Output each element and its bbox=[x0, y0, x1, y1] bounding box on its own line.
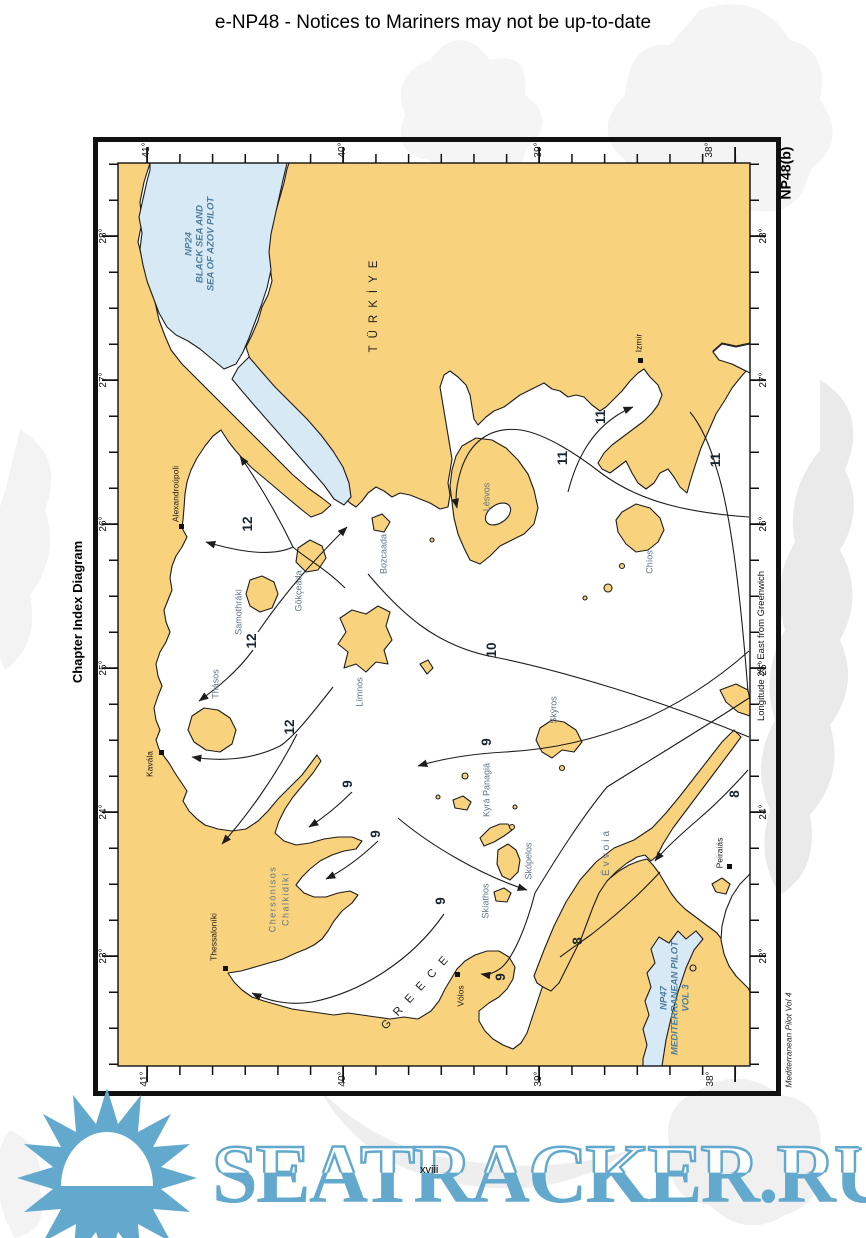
island-label-evvoia: Évvoia bbox=[602, 828, 613, 876]
islet bbox=[510, 825, 515, 830]
city-label-izmir: Izmir bbox=[635, 334, 644, 352]
islet bbox=[430, 538, 434, 542]
longitude-note: Longitude 25° East from Greenwich bbox=[757, 571, 767, 721]
axis-label-bottom-40: 40° bbox=[338, 1071, 349, 1086]
chapter-label-8b: 8 bbox=[728, 790, 742, 798]
axis-label-top-40: 40° bbox=[338, 142, 349, 157]
chapter-label-12b: 12 bbox=[245, 633, 259, 648]
peiraias-marker bbox=[727, 864, 732, 869]
chapter-label-12a: 12 bbox=[241, 516, 255, 531]
island-label-skiathos: Skíathos bbox=[481, 883, 490, 918]
islet bbox=[436, 795, 440, 799]
map-svg bbox=[0, 0, 866, 1238]
chapter-label-8a: 8 bbox=[571, 937, 585, 945]
islet bbox=[513, 805, 517, 809]
chapter-label-12c: 12 bbox=[283, 719, 297, 734]
island-label-limnos: Límnos bbox=[355, 677, 364, 707]
chapter-label-11c: 11 bbox=[556, 451, 570, 465]
chapter-label-11b: 11 bbox=[594, 410, 608, 424]
axis-label-top-41: 41° bbox=[142, 142, 153, 157]
axis-label-right-28: 28° bbox=[759, 228, 770, 243]
chart-side-title: Chapter Index Diagram bbox=[71, 541, 85, 683]
axis-label-bottom-38: 38° bbox=[706, 1071, 717, 1086]
chapter-label-9e: 9 bbox=[494, 973, 508, 981]
axis-label-left-27: 27° bbox=[99, 372, 110, 387]
kavala-marker bbox=[159, 750, 164, 755]
axis-label-right-23: 23° bbox=[759, 948, 770, 963]
city-label-peiraias: Peiraiás bbox=[716, 838, 725, 869]
chalkidiki-line2: Chalkidikí bbox=[279, 866, 292, 933]
page: e-NP48 - Notices to Mariners may not be … bbox=[0, 0, 866, 1238]
island-label-thasos: Thásos bbox=[211, 669, 220, 699]
island-label-skopelos: Skópelos bbox=[524, 842, 533, 879]
axis-label-left-24: 24° bbox=[99, 804, 110, 819]
island-label-samothraki: Samothráki bbox=[234, 589, 243, 635]
volos-marker bbox=[455, 972, 460, 977]
chapter-label-9b: 9 bbox=[369, 830, 383, 838]
publication-credit: Mediterranean Pilot Vol 4 bbox=[785, 992, 794, 1087]
np47-line3: VOL 3 bbox=[681, 941, 692, 1055]
chapter-label-10: 10 bbox=[485, 642, 499, 657]
axis-label-bottom-39: 39° bbox=[534, 1071, 545, 1086]
island-label-skyros: Skýros bbox=[549, 696, 558, 724]
chapter-label-9d: 9 bbox=[480, 738, 494, 746]
axis-label-right-26: 26° bbox=[759, 516, 770, 531]
city-label-volos: Vólos bbox=[457, 985, 466, 1006]
kyra-islet bbox=[462, 773, 468, 779]
city-label-thessaloniki: Thessaloníki bbox=[210, 913, 219, 961]
island-label-lesvos: Lésvos bbox=[482, 483, 491, 512]
np47-region-label: NP47 MEDITERRANEAN PILOT VOL 3 bbox=[660, 941, 693, 1055]
chapter-label-9a: 9 bbox=[341, 780, 355, 788]
izmir-marker bbox=[638, 358, 643, 363]
axis-label-top-38: 38° bbox=[705, 142, 716, 157]
psara-islet bbox=[604, 584, 612, 592]
axis-label-right-24: 24° bbox=[759, 804, 770, 819]
chart-number-label: NP48(b) bbox=[779, 147, 794, 200]
city-label-alexandroupoli: Alexandroúpoli bbox=[172, 466, 181, 522]
axis-label-right-25: 25° bbox=[759, 660, 770, 675]
axis-label-top-39: 39° bbox=[534, 142, 545, 157]
np24-region-label: NP24 BLACK SEA AND SEA OF AZOV PILOT bbox=[185, 197, 218, 291]
limnos-island bbox=[338, 606, 392, 672]
islet bbox=[583, 596, 587, 600]
country-label-turkiye: TÜRKİYE bbox=[368, 254, 380, 353]
np24-line3: SEA OF AZOV PILOT bbox=[206, 197, 217, 291]
page-number: xviii bbox=[420, 1165, 438, 1177]
thessaloniki-marker bbox=[223, 966, 228, 971]
chalkidiki-line1: Chersónisos bbox=[266, 866, 279, 933]
island-label-gokceada: Gökçeada bbox=[294, 570, 303, 611]
axis-label-left-28: 28° bbox=[99, 228, 110, 243]
island-label-kyra-panagia: Kyrá Panagiá bbox=[482, 763, 491, 817]
island-label-bozcaada: Bozcaada bbox=[379, 534, 388, 574]
axis-label-left-25: 25° bbox=[99, 660, 110, 675]
peninsula-label-chalkidiki: Chersónisos Chalkidikí bbox=[266, 866, 291, 933]
island-label-chios: Chíos bbox=[645, 550, 654, 574]
axis-label-left-23: 23° bbox=[99, 948, 110, 963]
chapter-label-9c: 9 bbox=[434, 897, 448, 905]
islet bbox=[620, 564, 625, 569]
axis-label-left-26: 26° bbox=[99, 516, 110, 531]
city-label-kavala: Kavála bbox=[146, 751, 155, 777]
islet bbox=[560, 766, 565, 771]
axis-label-right-27: 27° bbox=[759, 372, 770, 387]
chapter-label-11a: 11 bbox=[709, 453, 723, 467]
axis-label-bottom-41: 41° bbox=[140, 1071, 151, 1086]
alexandroupoli-marker bbox=[179, 524, 184, 529]
